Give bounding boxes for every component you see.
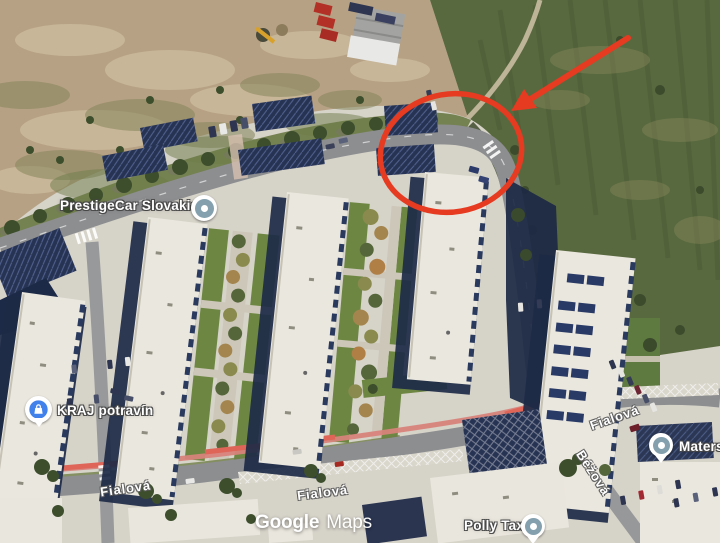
polly-marker[interactable]: [521, 514, 545, 538]
watermark-product: Maps: [326, 512, 372, 533]
poi-dot-icon: [525, 518, 542, 535]
prestigecar-marker[interactable]: [191, 195, 217, 221]
poi-label-materska[interactable]: Maters: [679, 440, 720, 454]
poi-label-polly[interactable]: Polly Taxi: [464, 519, 528, 533]
poi-dot-icon: [653, 437, 670, 454]
poi-dot-icon: [195, 199, 214, 218]
watermark-brand: Google: [255, 512, 319, 533]
map-canvas[interactable]: PrestigeCar Slovakia KRAJ potravín Mater…: [0, 0, 720, 543]
google-maps-watermark[interactable]: GoogleMaps: [255, 512, 372, 534]
materska-marker[interactable]: [649, 433, 673, 457]
satellite-imagery: [0, 0, 720, 543]
shopping-bag-icon: [28, 399, 49, 420]
poi-label-prestigecar[interactable]: PrestigeCar Slovakia: [60, 199, 198, 213]
kraj-marker[interactable]: [25, 396, 52, 423]
poi-label-kraj[interactable]: KRAJ potravín: [57, 404, 153, 418]
